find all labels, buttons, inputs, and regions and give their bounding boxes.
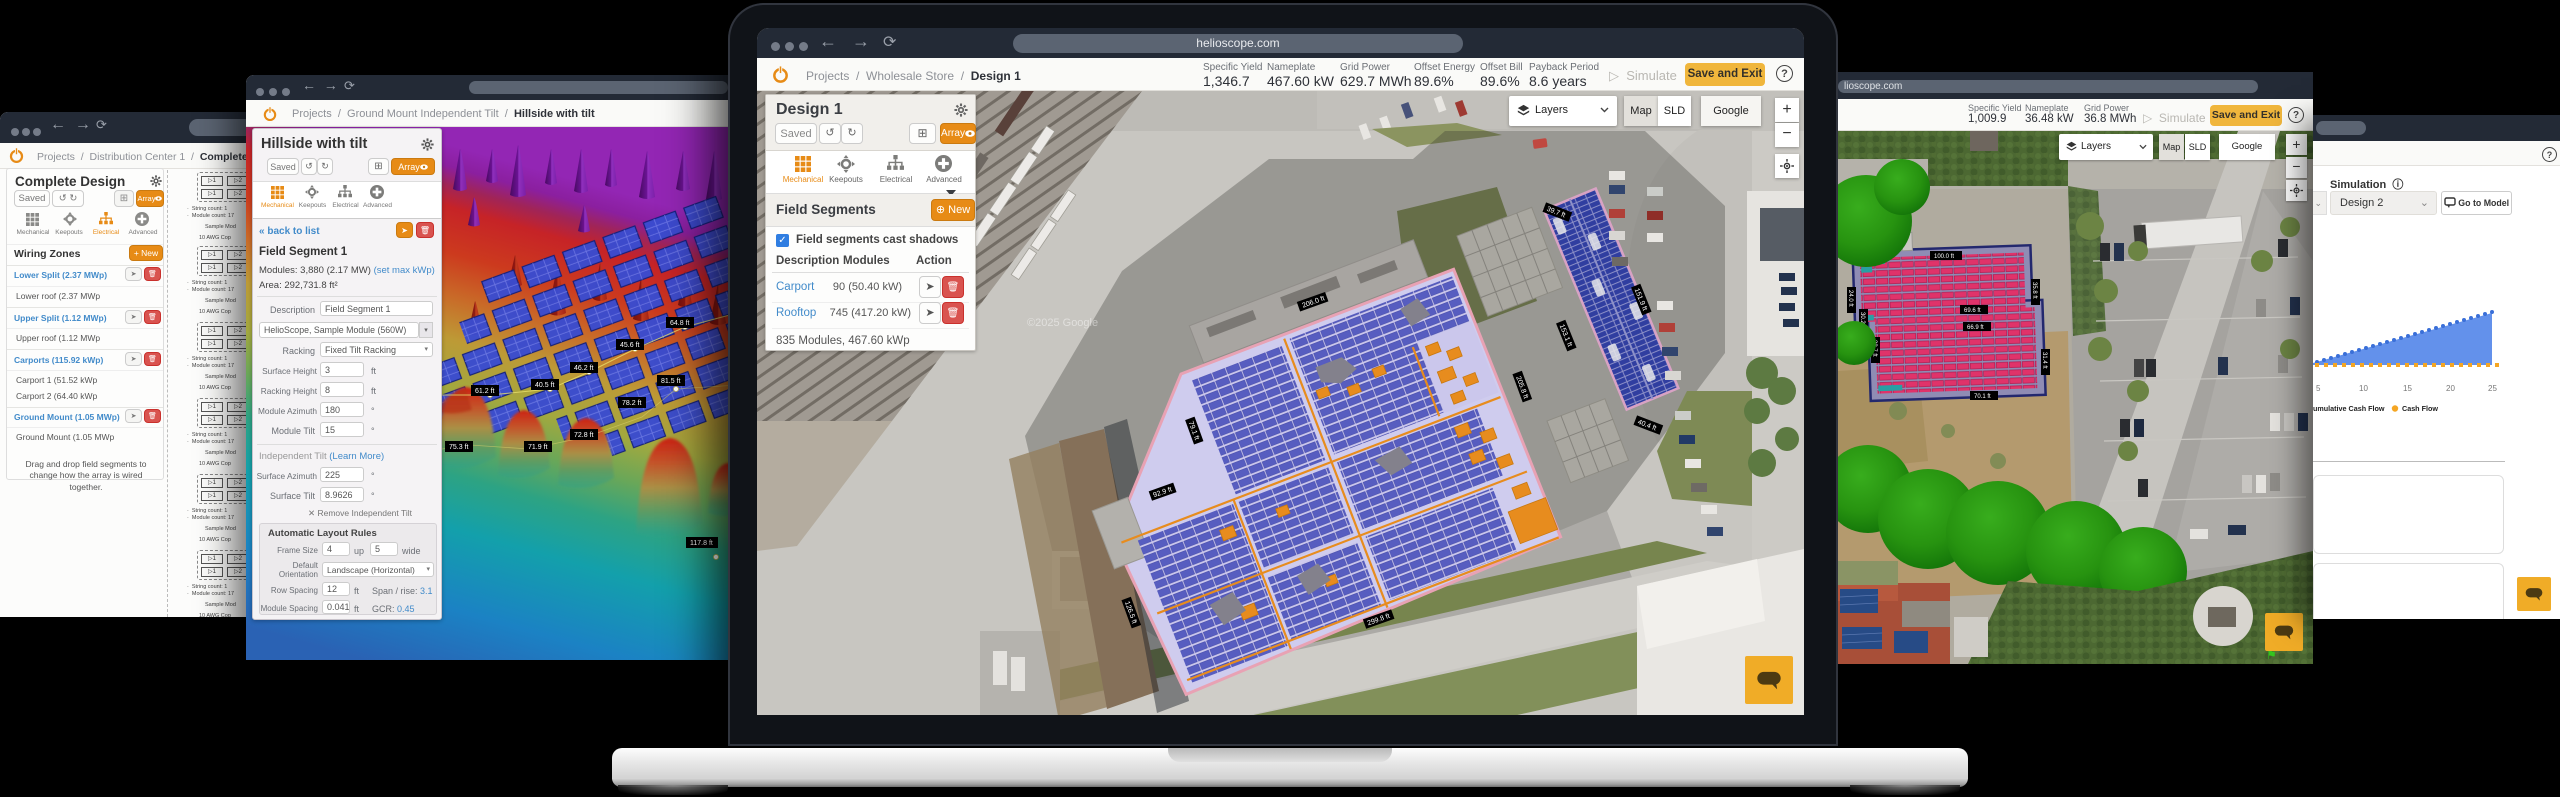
svg-text:20: 20 bbox=[2446, 384, 2455, 393]
svg-text:40.5 ft: 40.5 ft bbox=[535, 382, 555, 389]
svg-text:61.2 ft: 61.2 ft bbox=[475, 388, 495, 395]
svg-text:Cash Flow: Cash Flow bbox=[2402, 404, 2438, 413]
svg-text:10: 10 bbox=[2359, 384, 2368, 393]
svg-text:45.6 ft: 45.6 ft bbox=[620, 342, 640, 349]
svg-text:5: 5 bbox=[2316, 384, 2321, 393]
svg-text:75.3 ft: 75.3 ft bbox=[449, 444, 469, 451]
svg-text:78.2 ft: 78.2 ft bbox=[622, 400, 642, 407]
svg-text:46.2 ft: 46.2 ft bbox=[574, 365, 594, 372]
svg-text:70.1 ft: 70.1 ft bbox=[1974, 394, 1991, 400]
svg-text:31.4 ft: 31.4 ft bbox=[2041, 352, 2047, 369]
svg-text:117.8 ft: 117.8 ft bbox=[690, 540, 713, 547]
svg-text:35.8 ft: 35.8 ft bbox=[2031, 282, 2037, 299]
svg-text:72.8 ft: 72.8 ft bbox=[574, 432, 594, 439]
svg-text:©2025 Google: ©2025 Google bbox=[1027, 317, 1098, 329]
svg-text:24.0 ft: 24.0 ft bbox=[1847, 290, 1853, 307]
svg-text:15: 15 bbox=[2403, 384, 2412, 393]
svg-text:25: 25 bbox=[2488, 384, 2497, 393]
svg-text:66.9 ft: 66.9 ft bbox=[1967, 325, 1984, 331]
svg-text:81.5 ft: 81.5 ft bbox=[661, 378, 681, 385]
svg-text:100.0 ft: 100.0 ft bbox=[1934, 254, 1954, 260]
svg-text:71.9 ft: 71.9 ft bbox=[528, 444, 548, 451]
svg-text:umulative Cash Flow: umulative Cash Flow bbox=[2313, 404, 2385, 413]
svg-text:69.6 ft: 69.6 ft bbox=[1964, 308, 1981, 314]
svg-text:64.8 ft: 64.8 ft bbox=[670, 320, 690, 327]
